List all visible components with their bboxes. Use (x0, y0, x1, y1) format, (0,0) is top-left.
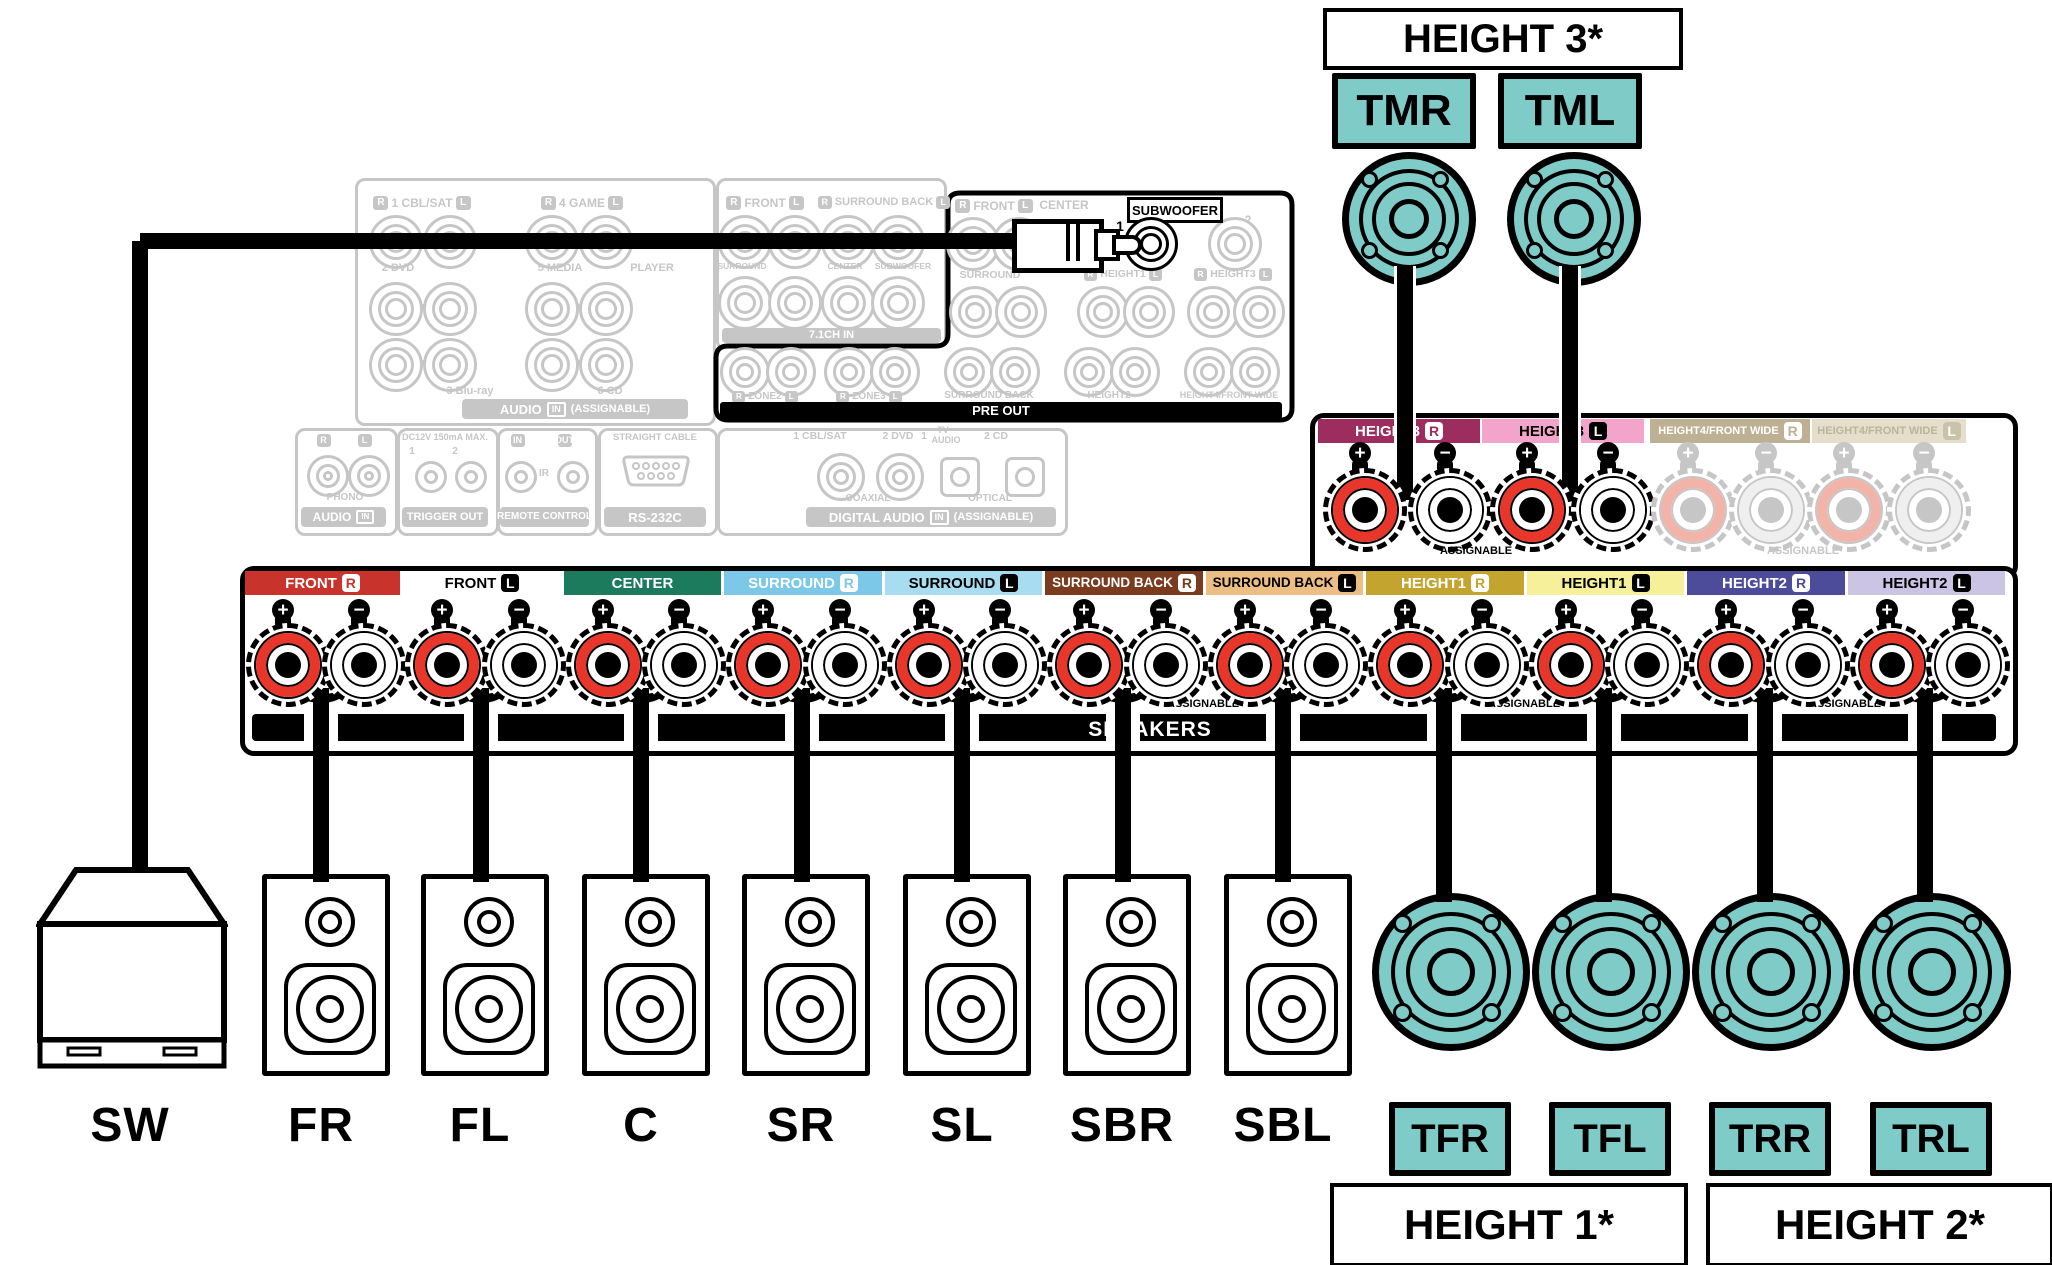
woofer-center (1117, 995, 1145, 1023)
box-speaker-SL (903, 874, 1031, 1076)
strip-bar-8: HEIGHT1L (1527, 571, 1684, 595)
tweeter (1106, 897, 1156, 947)
post-center (755, 652, 781, 678)
strip-bar-3: SURROUNDR (724, 571, 882, 595)
post-center (434, 652, 460, 678)
post-center (351, 652, 377, 678)
tweeter-inner (318, 910, 342, 934)
post-center (511, 652, 537, 678)
terminal-sign: + (1876, 599, 1898, 621)
post-center (1519, 497, 1545, 523)
channel-badge: R (1425, 422, 1443, 440)
strip-terminal-3-minus (803, 623, 887, 707)
screw (1713, 914, 1732, 933)
height3-group-label: HEIGHT 3* (1323, 8, 1683, 70)
remote-bar: REMOTE CONTROL (500, 507, 589, 527)
channel-badge: L (1259, 268, 1273, 281)
channel-badge: L (1632, 574, 1650, 592)
jack-ring (736, 363, 754, 381)
post-center (1634, 652, 1660, 678)
screw (1642, 914, 1661, 933)
strip-terminal-7-minus (1445, 623, 1529, 707)
jack-ring (886, 363, 904, 381)
strip-terminal-8-minus (1605, 623, 1689, 707)
speaker-cable-5 (1115, 688, 1131, 882)
channel-badge: L (1338, 574, 1356, 592)
screw (1963, 914, 1982, 933)
jack-ring (1093, 302, 1113, 322)
woofer-center (796, 995, 824, 1023)
strip-terminal-2-plus (566, 623, 650, 707)
tml-label-text: TML (1525, 89, 1615, 133)
channel-badge: R (1194, 268, 1208, 281)
trigger-bar: TRIGGER OUT (402, 507, 488, 527)
woofer (604, 963, 696, 1055)
channel-badge: R (1471, 574, 1489, 592)
terminal-sign: − (1434, 442, 1456, 464)
screw (1482, 1003, 1501, 1022)
screw (1393, 1003, 1412, 1022)
height3-group-label-text: HEIGHT 3* (1403, 19, 1603, 59)
preout-jack-row2-1-l (1123, 286, 1175, 338)
jack-ring (385, 298, 407, 320)
jack-ring (734, 292, 756, 314)
height3-terminal-6 (1807, 468, 1891, 552)
terminal-sign: − (348, 599, 370, 621)
strip-terminal-6-plus (1208, 623, 1292, 707)
teal-badge-TFL: TFL (1549, 1102, 1671, 1176)
tweeter-inner (798, 910, 822, 934)
terminal-sign: − (1755, 442, 1777, 464)
strip-terminal-10-plus (1850, 623, 1934, 707)
tweeter (464, 897, 514, 947)
preout-jack-row2-2-r (1187, 286, 1239, 338)
jack-ring (1224, 233, 1246, 255)
post-center (1836, 497, 1862, 523)
box-speaker-SBL (1224, 874, 1352, 1076)
channel-badge: L (501, 574, 519, 592)
tweeter-inner (1280, 910, 1304, 934)
speaker-cable-2 (633, 688, 649, 882)
height3-terminal-2 (1490, 468, 1574, 552)
strip-terminal-5-plus (1047, 623, 1131, 707)
preout-jack-row2-2-l (1233, 286, 1285, 338)
height2-group-label-text: HEIGHT 2* (1775, 1204, 1985, 1246)
terminal-sign: − (989, 599, 1011, 621)
analog-jack-row3-0-l (423, 338, 477, 392)
ch71-bar: 7.1CH IN (722, 328, 941, 343)
strip-terminal-0-minus (322, 623, 406, 707)
preout-jack1-number: 1 (920, 219, 1320, 233)
post-center (1437, 497, 1463, 523)
screw (1713, 1003, 1732, 1022)
jack-ring (840, 363, 858, 381)
channel-badge: L (1943, 422, 1961, 440)
screw (1526, 242, 1543, 259)
speaker-cable-7 (1436, 688, 1452, 902)
preout-jack-row3-1-r (824, 347, 874, 397)
woofer (1085, 963, 1177, 1055)
terminal-sign: + (752, 599, 774, 621)
height2-group-label: HEIGHT 2* (1706, 1183, 2052, 1265)
woofer (764, 963, 856, 1055)
speaker-cable-3 (794, 688, 810, 882)
strip-terminal-3-plus (726, 623, 810, 707)
channel-badge: L (1589, 422, 1607, 440)
woofer (284, 963, 376, 1055)
terminal-sign: + (1833, 442, 1855, 464)
digital-bar: DIGITAL AUDIOIN(ASSIGNABLE) (806, 507, 1056, 527)
strip-bar-9: HEIGHT2R (1687, 571, 1845, 595)
ceiling-speaker-TFR (1372, 893, 1530, 1051)
analog-jack-row2-1-r (525, 282, 579, 336)
jack-ring (1011, 302, 1031, 322)
analog-jack-row3-0-r (369, 338, 423, 392)
post-center (1352, 497, 1378, 523)
preout-jack-row2-0-r (949, 286, 1001, 338)
ceiling-speaker-TRR (1692, 893, 1850, 1051)
phono-name: PHONO (145, 493, 545, 503)
strip-terminal-8-plus (1529, 623, 1613, 707)
jack-ring (541, 354, 563, 376)
woofer (1246, 963, 1338, 1055)
jack-ring (1006, 363, 1024, 381)
strip-terminal-5-minus (1124, 623, 1208, 707)
channel-badge: R (1178, 574, 1196, 592)
speaker-cable-9 (1757, 688, 1773, 902)
box-speaker-C (582, 874, 710, 1076)
channel-badge: R (342, 574, 360, 592)
post-center (1313, 652, 1339, 678)
speaker-center (1427, 948, 1475, 996)
post-center (1758, 497, 1784, 523)
woofer (443, 963, 535, 1055)
ceiling-speaker-TFL (1532, 893, 1690, 1051)
tmr-label-text: TMR (1356, 89, 1451, 133)
speaker-center (1908, 948, 1956, 996)
strip-terminal-4-minus (963, 623, 1047, 707)
woofer-center (636, 995, 664, 1023)
rca-plug-body (1012, 219, 1104, 273)
post-center (992, 652, 1018, 678)
rca-plug-stripe (1066, 221, 1070, 261)
terminal-sign: − (829, 599, 851, 621)
strip-terminal-0-plus (246, 623, 330, 707)
height3-terminal-7 (1887, 468, 1971, 552)
speaker-center (1747, 948, 1795, 996)
terminal-sign: + (1715, 599, 1737, 621)
screw (1553, 914, 1572, 933)
screw (1874, 914, 1893, 933)
box-speaker-SR (742, 874, 870, 1076)
jack-ring (782, 363, 800, 381)
tweeter-inner (959, 910, 983, 934)
terminal-sign: − (508, 599, 530, 621)
tweeter (946, 897, 996, 947)
strip-bar-1: FRONTL (403, 571, 561, 595)
jack-ring (784, 292, 806, 314)
jack-ring (1203, 302, 1223, 322)
tweeter-inner (638, 910, 662, 934)
post-center (1916, 497, 1942, 523)
post-center (1879, 652, 1905, 678)
speaker-cable-1 (473, 688, 489, 882)
tweeter-inner (477, 910, 501, 934)
speaker-cable-8 (1596, 688, 1612, 902)
strip-terminal-7-plus (1368, 623, 1452, 707)
screw (1361, 171, 1378, 188)
post-center (595, 652, 621, 678)
strip-bar-2: CENTER (564, 571, 721, 595)
ch71-jack-row2-center (821, 276, 875, 330)
terminal-sign: + (1394, 599, 1416, 621)
post-center (275, 652, 301, 678)
terminal-sign: + (272, 599, 294, 621)
screw (1526, 171, 1543, 188)
screw (1642, 1003, 1661, 1022)
jack-ring (385, 354, 407, 376)
strip-bar-10: HEIGHT2L (1848, 571, 2005, 595)
strip-bar-5: SURROUND BACKR (1045, 571, 1203, 595)
preout-jack-row2-1-r (1077, 286, 1129, 338)
teal-badge-TRL: TRL (1870, 1102, 1992, 1176)
terminal-sign: + (1073, 599, 1095, 621)
height3-terminal-5 (1729, 468, 1813, 552)
ch71-jack-row2-sub (871, 276, 925, 330)
terminal-sign: − (1310, 599, 1332, 621)
channel-badge: L (1953, 574, 1971, 592)
screw (1874, 1003, 1893, 1022)
tweeter (785, 897, 835, 947)
analog-jack-row2-0-r (369, 282, 423, 336)
jack-ring (833, 469, 849, 485)
height1-group-label: HEIGHT 1* (1330, 1183, 1688, 1265)
strip-terminal-4-plus (887, 623, 971, 707)
strip-terminal-9-plus (1689, 623, 1773, 707)
preout-jack-row3-0-r (720, 347, 770, 397)
screw (1482, 914, 1501, 933)
jack-ring (595, 354, 617, 376)
jack-ring (439, 298, 461, 320)
post-center (916, 652, 942, 678)
channel-badge: R (1784, 422, 1802, 440)
tml-speaker-badge: TML (1498, 73, 1642, 149)
speaker-center (1587, 948, 1635, 996)
jack-ring (837, 292, 859, 314)
jack-ring (1140, 233, 1162, 255)
speaker-cable-10 (1917, 688, 1933, 902)
strip-bar-7: HEIGHT1R (1366, 571, 1524, 595)
subwoofer-cable-horizontal (140, 233, 1014, 249)
channel-badge: R (1792, 574, 1810, 592)
rs232-db9-connector (622, 455, 690, 487)
digital-optical-0 (940, 457, 980, 497)
woofer-center (316, 995, 344, 1023)
jack-ring (323, 471, 333, 481)
speaker-center (1389, 199, 1429, 239)
terminal-sign: + (1349, 442, 1371, 464)
ceiling-speaker-TRL (1853, 893, 2011, 1051)
post-center (1718, 652, 1744, 678)
tweeter (625, 897, 675, 947)
terminal-sign: − (1631, 599, 1653, 621)
screw (1553, 1003, 1572, 1022)
rca-plug-pin (1112, 235, 1142, 255)
analog-jack-row2-0-l (423, 282, 477, 336)
post-center (671, 652, 697, 678)
jack-ring (892, 469, 908, 485)
strip-bar-4: SURROUNDL (885, 571, 1042, 595)
jack-ring (960, 363, 978, 381)
preout-jack-row3-1-l (870, 347, 920, 397)
screw (1393, 914, 1412, 933)
strip-terminal-9-minus (1766, 623, 1850, 707)
speakers-bar-label: SPEAKERS (1060, 719, 1240, 740)
strip-terminal-2-minus (642, 623, 726, 707)
speaker-cable-0 (313, 688, 329, 882)
screw (1432, 242, 1449, 259)
post-center (1680, 497, 1706, 523)
height3-panel-bar-2: HEIGHT4/FRONT WIDER (1650, 419, 1810, 443)
height3-terminal-1 (1408, 468, 1492, 552)
post-center (1955, 652, 1981, 678)
preout-jack-row2-0-l (995, 286, 1047, 338)
post-center (1397, 652, 1423, 678)
height3-terminal-0 (1323, 468, 1407, 552)
channel-badge: L (1000, 574, 1018, 592)
jack-ring (595, 298, 617, 320)
strip-bar-6: SURROUND BACKL (1206, 571, 1363, 595)
terminal-sign: − (1597, 442, 1619, 464)
terminal-sign: + (913, 599, 935, 621)
tml-cable (1559, 266, 1581, 500)
screw (1597, 171, 1614, 188)
digital-label-cd: 2 CD (796, 431, 1196, 442)
rs232-bar: RS-232C (604, 507, 706, 527)
analog-jack-row2-1-l (579, 282, 633, 336)
terminal-sign: + (431, 599, 453, 621)
rca-plug-stripe (1076, 221, 1080, 261)
terminal-sign: + (1234, 599, 1256, 621)
tmr-speaker-badge: TMR (1332, 73, 1476, 149)
jack-ring (1246, 363, 1264, 381)
preout-bar-text: PRE OUT (972, 404, 1030, 417)
post-center (1558, 652, 1584, 678)
jack-ring (1139, 302, 1159, 322)
tmr-cable (1394, 266, 1416, 500)
tweeter (1267, 897, 1317, 947)
jack-ring (541, 298, 563, 320)
strip-terminal-6-minus (1284, 623, 1368, 707)
post-center (1795, 652, 1821, 678)
speaker-cable-6 (1275, 688, 1291, 882)
woofer (925, 963, 1017, 1055)
terminal-sign: − (1913, 442, 1935, 464)
subwoofer-speaker (36, 866, 228, 1072)
strip-terminal-1-minus (482, 623, 566, 707)
terminal-sign: + (1677, 442, 1699, 464)
subwoofer-cable-riser (132, 241, 148, 872)
subwoofer-label-text: SUBWOOFER (1132, 204, 1218, 217)
terminal-sign: + (592, 599, 614, 621)
post-center (1600, 497, 1626, 523)
terminal-sign: − (1150, 599, 1172, 621)
woofer-center (957, 995, 985, 1023)
tweeter (305, 897, 355, 947)
trigger-2: 2 (255, 447, 655, 457)
tweeter-inner (1119, 910, 1143, 934)
terminal-sign: − (668, 599, 690, 621)
jack-ring (887, 292, 909, 314)
optical-inner (950, 467, 970, 487)
optical-inner (1015, 467, 1035, 487)
ch71-jack-row2-0-l (768, 276, 822, 330)
jack-ring (1249, 302, 1269, 322)
height3-panel-bar-3: HEIGHT4/FRONT WIDEL (1812, 419, 1966, 443)
screw (1361, 242, 1378, 259)
phono-jacks-r (307, 455, 349, 497)
terminal-sign: + (1555, 599, 1577, 621)
preout-jack-row3-0-l (766, 347, 816, 397)
analog-jack-row3-1-r (525, 338, 579, 392)
woofer-center (1278, 995, 1306, 1023)
teal-badge-TRR: TRR (1709, 1102, 1831, 1176)
speaker-connection-diagram: HEIGHT 3* TMR TML SUBWOOFER PRE OUT SPEA… (0, 0, 2052, 1265)
post-center (1474, 652, 1500, 678)
jack-ring (1080, 363, 1098, 381)
speaker-cable-4 (954, 688, 970, 882)
screw (1432, 171, 1449, 188)
height3-terminal-3 (1571, 468, 1655, 552)
height3-terminal-4 (1651, 468, 1735, 552)
terminal-sign: − (1792, 599, 1814, 621)
post-center (832, 652, 858, 678)
digital-optical-label: OPTICAL (790, 494, 1190, 504)
terminal-sign: + (1516, 442, 1538, 464)
strip-terminal-10-minus (1926, 623, 2010, 707)
jack-ring (1126, 363, 1144, 381)
screw (1597, 242, 1614, 259)
jack-ring (439, 354, 461, 376)
preout-label-height4: HEIGHT4/FRONT WIDE (1029, 391, 1429, 400)
box-speaker-FL (421, 874, 549, 1076)
strip-terminal-1-plus (405, 623, 489, 707)
terminal-sign: − (1471, 599, 1493, 621)
screw (1963, 1003, 1982, 1022)
height4-assignable: ASSIGNABLE (1603, 546, 2003, 557)
analog-jack-row3-1-l (579, 338, 633, 392)
preout-bar: PRE OUT (720, 402, 1282, 419)
post-center (1153, 652, 1179, 678)
digital-optical-1 (1005, 457, 1045, 497)
box-speaker-FR (262, 874, 390, 1076)
phono-bar: AUDIOIN (301, 507, 386, 527)
speaker-center (1554, 199, 1594, 239)
height1-group-label-text: HEIGHT 1* (1404, 1204, 1614, 1246)
screw (1802, 1003, 1821, 1022)
box-speaker-SBR (1063, 874, 1191, 1076)
jack-ring (1200, 363, 1218, 381)
ch71-jack-row2-0-r (718, 276, 772, 330)
jack-ring (965, 302, 985, 322)
teal-badge-TFR: TFR (1389, 1102, 1511, 1176)
terminal-sign: − (1952, 599, 1974, 621)
post-center (1237, 652, 1263, 678)
strip-bar-0: FRONTR (245, 571, 400, 595)
channel-badge: R (840, 574, 858, 592)
woofer-center (475, 995, 503, 1023)
post-center (1076, 652, 1102, 678)
